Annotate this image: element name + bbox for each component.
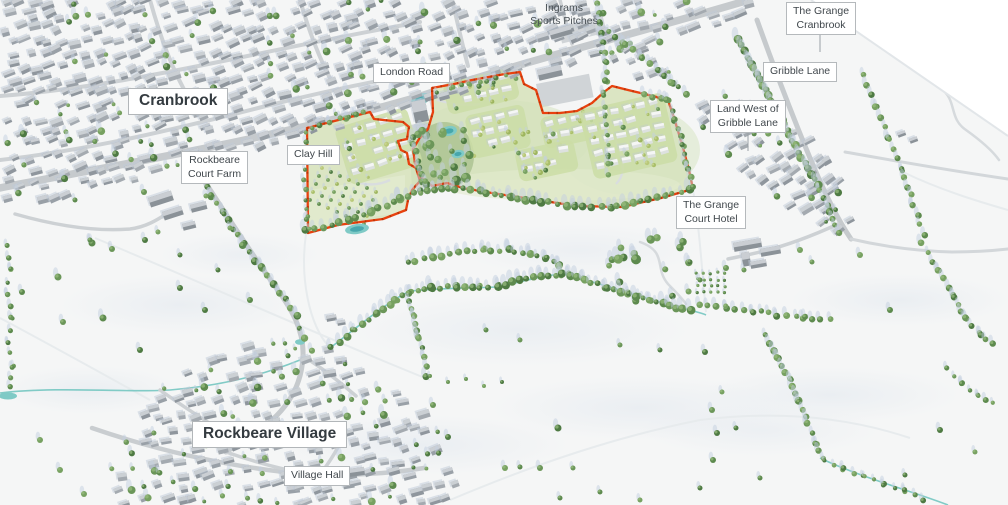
label-the-grange-cranbrook: The Grange Cranbrook [786,2,856,35]
label-clay-hill: Clay Hill [287,145,340,165]
label-village-hall: Village Hall [284,466,350,486]
label-rockbeare-court-farm: Rockbeare Court Farm [181,151,248,184]
label-london-road: London Road [373,63,450,83]
label-gribble-lane: Gribble Lane [763,62,837,82]
map-canvas [0,0,1008,505]
label-cranbrook: Cranbrook [128,88,228,115]
label-rockbeare-village: Rockbeare Village [192,421,347,448]
aerial-masterplan-view: Cranbrook Rockbeare Court Farm Clay Hill… [0,0,1008,505]
label-ingrams-sports-pitches: Ingrams Sports Pitches [518,2,610,28]
label-the-grange-court-hotel: The Grange Court Hotel [676,196,746,229]
label-land-west-of-gribble-lane: Land West of Gribble Lane [710,100,786,133]
